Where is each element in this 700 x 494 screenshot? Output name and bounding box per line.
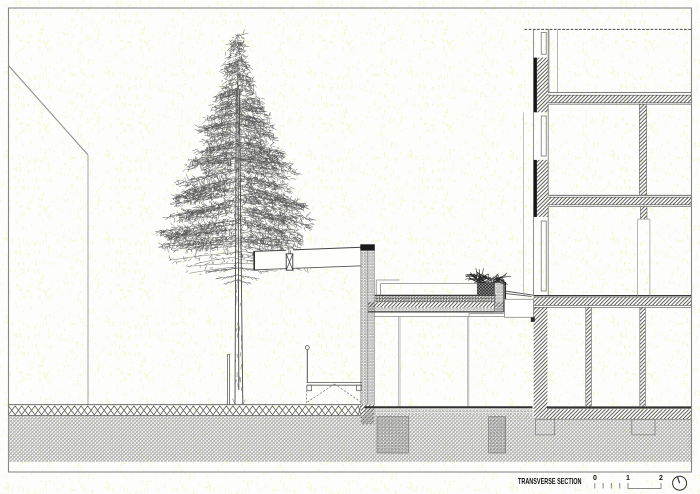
svg-text:1: 1 <box>626 475 630 482</box>
svg-text:0: 0 <box>593 475 597 482</box>
svg-text:2: 2 <box>659 475 663 482</box>
svg-text:TRANSVERSE SECTION: TRANSVERSE SECTION <box>518 477 582 486</box>
